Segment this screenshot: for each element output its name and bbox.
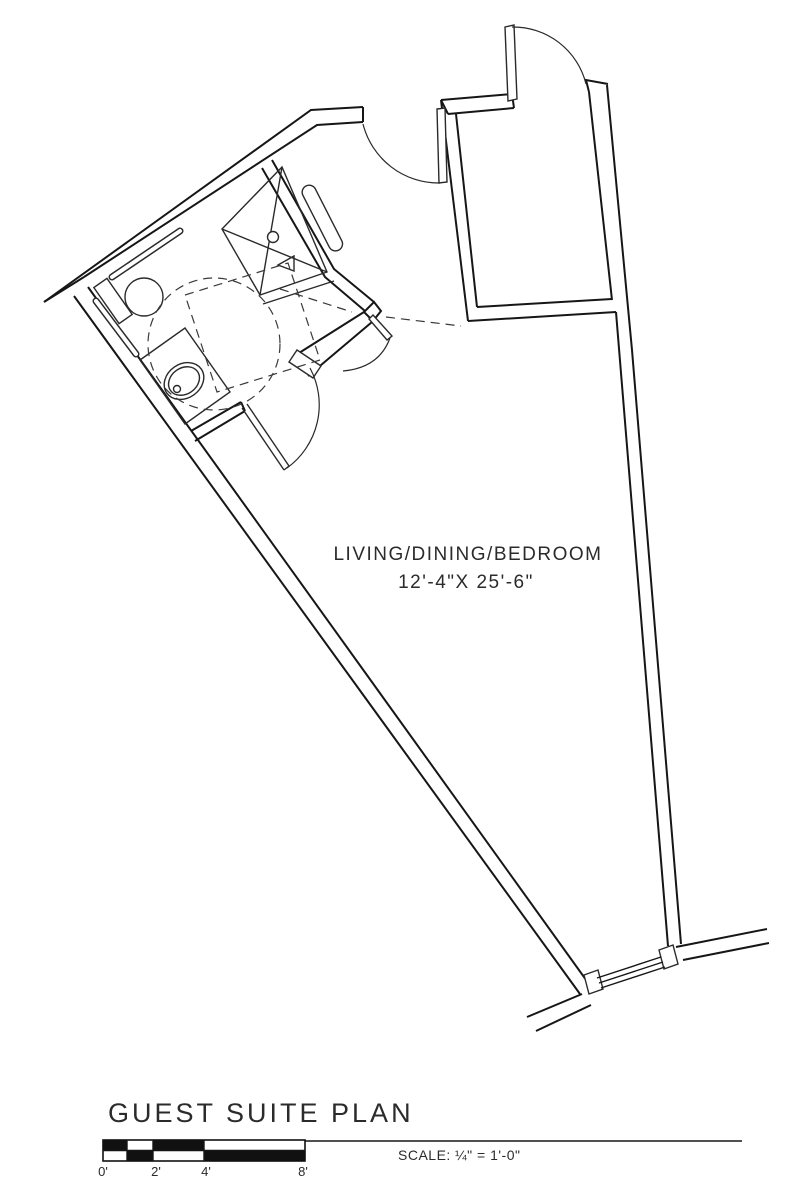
sink-drain-icon: [174, 386, 181, 393]
left-wall-inner-face: [88, 287, 589, 984]
bathroom-south-wall: [191, 402, 245, 441]
window: [584, 945, 678, 994]
scale-note: SCALE: ¼" = 1'-0": [398, 1147, 520, 1163]
stub-wall-column: [289, 350, 321, 378]
closet-left-wall-inner: [456, 114, 477, 307]
ruler-label-4: 4': [201, 1164, 211, 1179]
title-block: GUEST SUITE PLAN: [108, 1098, 414, 1128]
scale-bar: 0' 2' 4' 8' SCALE: ¼" = 1'-0": [98, 1140, 742, 1179]
bottom-left-wall-stub: [527, 994, 591, 1031]
plan-title: GUEST SUITE PLAN: [108, 1098, 414, 1128]
shower-seat: [300, 183, 345, 254]
right-wall-top-cap: [586, 80, 608, 92]
shower-drain-icon: [268, 232, 279, 243]
bathroom-door-leaf: [242, 404, 289, 470]
right-wall-outer-face: [607, 85, 681, 944]
entry-door-leaf: [505, 25, 517, 101]
scale-bar-segment: [127, 1151, 153, 1162]
scale-note-value: ¼" = 1'-0": [455, 1147, 520, 1163]
closet-top-wall: [441, 94, 514, 114]
scale-bar-segment: [204, 1151, 305, 1162]
left-wall-outer-face: [74, 296, 580, 994]
suite-door-swing-arc: [363, 124, 440, 183]
scale-ruler-labels: 0' 2' 4' 8': [98, 1164, 308, 1179]
sink-fixture: [140, 328, 230, 424]
window-right-jamb: [659, 945, 678, 969]
drawing-sheet: LIVING/DINING/BEDROOM 12'-4"X 25'-6" GUE…: [0, 0, 800, 1200]
clearance-line-vestibule: [280, 289, 352, 312]
scale-bar-segment: [103, 1140, 127, 1151]
bathroom-doors: [242, 315, 392, 470]
sink-bowl-outer: [157, 355, 211, 407]
vestibule-door-leaf: [369, 315, 392, 340]
closet-bottom-wall-outer: [468, 312, 616, 321]
closet-bottom-wall-inner: [477, 299, 612, 307]
scale-bar-segment: [153, 1140, 204, 1151]
vestibule-door-swing-arc: [343, 338, 390, 371]
suite-door-leaf: [437, 108, 447, 183]
room-label-line2: 12'-4"X 25'-6": [398, 572, 534, 593]
ruler-label-8: 8': [298, 1164, 308, 1179]
entry-door-swing-arc: [512, 27, 586, 84]
scale-note-label: SCALE:: [398, 1147, 451, 1163]
bathroom-door-swing-arc: [287, 368, 319, 468]
closet-walls: [441, 94, 616, 321]
shower-curb-line: [263, 281, 334, 304]
room-label-line1: LIVING/DINING/BEDROOM: [333, 544, 602, 565]
grab-bar-top-wall-inner: [112, 231, 180, 277]
right-wall-inner-face-upper: [589, 92, 612, 300]
opening-header-line: [386, 317, 461, 326]
floor-plan-canvas: LIVING/DINING/BEDROOM 12'-4"X 25'-6" GUE…: [0, 0, 800, 1200]
top-wall-left-cap: [44, 277, 84, 302]
ruler-label-2: 2': [151, 1164, 161, 1179]
ruler-label-0: 0': [98, 1164, 108, 1179]
room-label: LIVING/DINING/BEDROOM 12'-4"X 25'-6": [333, 544, 602, 593]
window-glazing-lines: [597, 957, 665, 988]
bottom-right-wall-extension: [676, 929, 769, 960]
right-wall-inner-face-lower: [616, 312, 668, 946]
entry-doors: [363, 25, 586, 183]
